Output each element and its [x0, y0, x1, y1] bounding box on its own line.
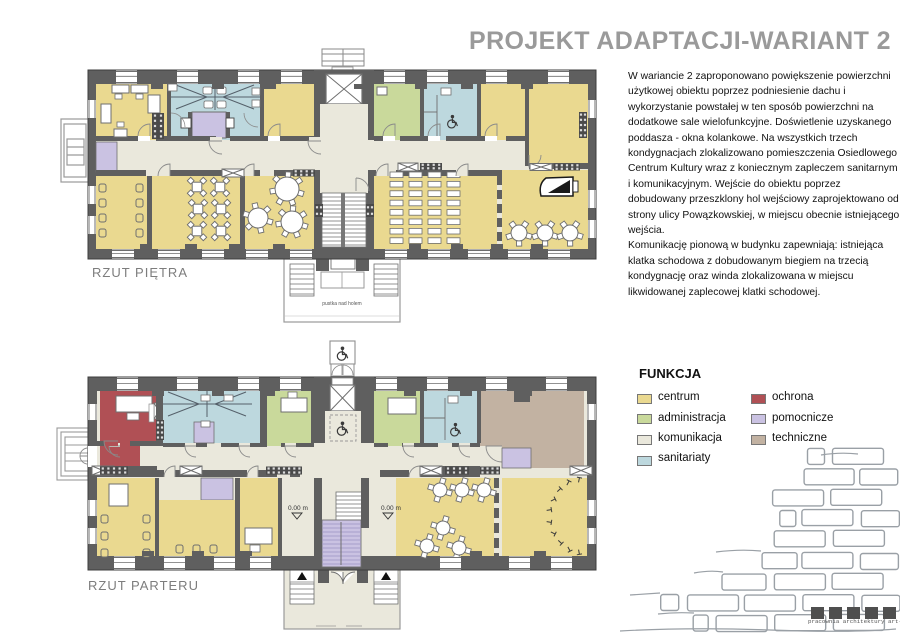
svg-text:0.00 m: 0.00 m [288, 505, 308, 512]
svg-text:pustka nad holem: pustka nad holem [322, 301, 361, 307]
svg-text:0.00 m: 0.00 m [381, 505, 401, 512]
